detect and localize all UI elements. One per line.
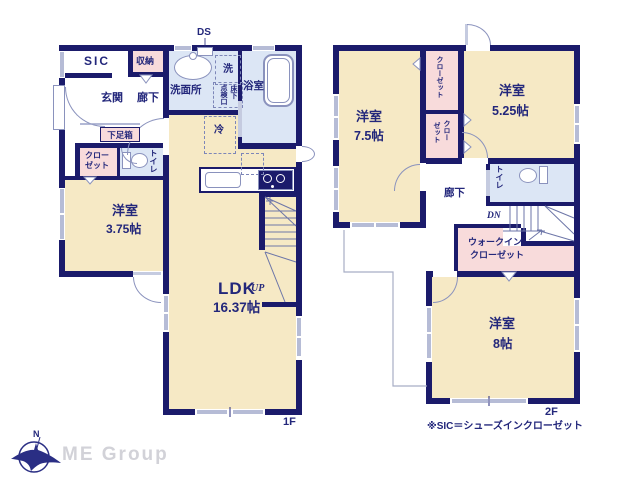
compass-icon — [11, 437, 61, 472]
closet-1f-door-triangle — [84, 177, 96, 184]
floor-plan-canvas: DS SIC 収納 玄関 廊下 洗 洗面所 点検口 床下 浴室 下足箱 クロー … — [0, 0, 640, 480]
wic-door-triangle — [502, 272, 516, 281]
vector-overlay — [0, 0, 640, 480]
closet-2f-door-triangle — [464, 114, 471, 126]
stairs-2f — [503, 206, 574, 241]
door-triangles — [84, 58, 516, 281]
storage-door-triangle — [140, 75, 152, 83]
closet-2f-door-triangle — [413, 58, 420, 70]
closet-2f-door-triangle — [464, 141, 471, 153]
lower-floor-outline — [344, 230, 427, 386]
stairs-1f — [265, 197, 296, 302]
